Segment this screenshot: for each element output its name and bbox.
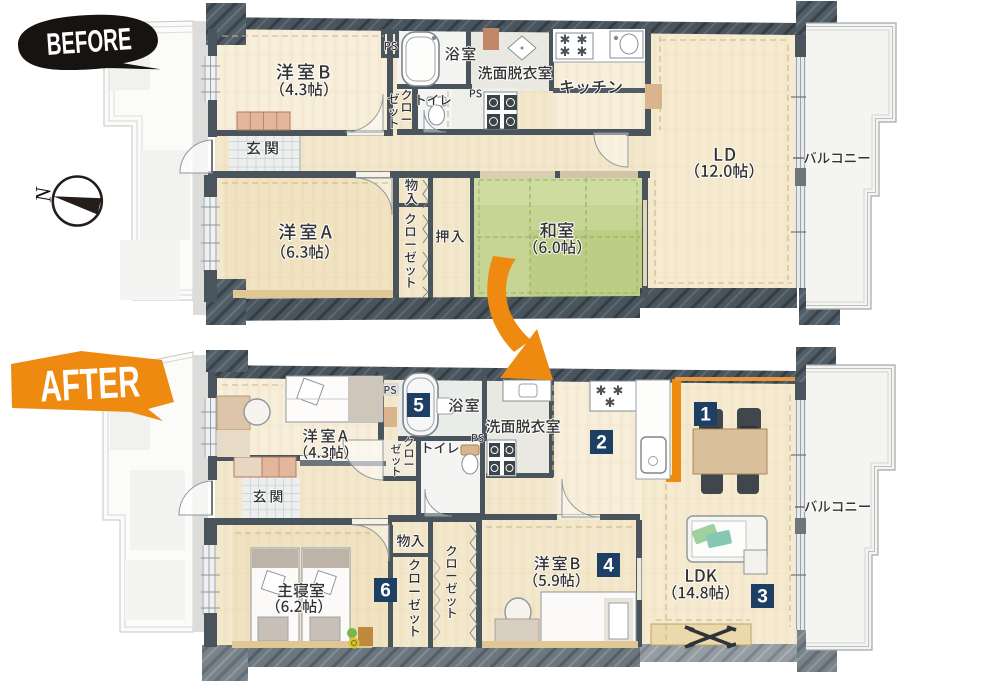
svg-text:N: N xyxy=(31,186,56,203)
svg-text:3: 3 xyxy=(757,587,768,608)
svg-text:✱: ✱ xyxy=(577,44,588,59)
svg-text:1: 1 xyxy=(700,405,711,426)
svg-text:BEFORE: BEFORE xyxy=(45,21,132,62)
svg-text:6: 6 xyxy=(380,581,391,602)
svg-text:✱: ✱ xyxy=(605,395,616,410)
svg-text:2: 2 xyxy=(596,433,607,454)
svg-text:4: 4 xyxy=(603,556,614,577)
svg-text:5: 5 xyxy=(413,396,424,417)
svg-text:AFTER: AFTER xyxy=(39,357,141,411)
svg-text:✱: ✱ xyxy=(560,44,571,59)
